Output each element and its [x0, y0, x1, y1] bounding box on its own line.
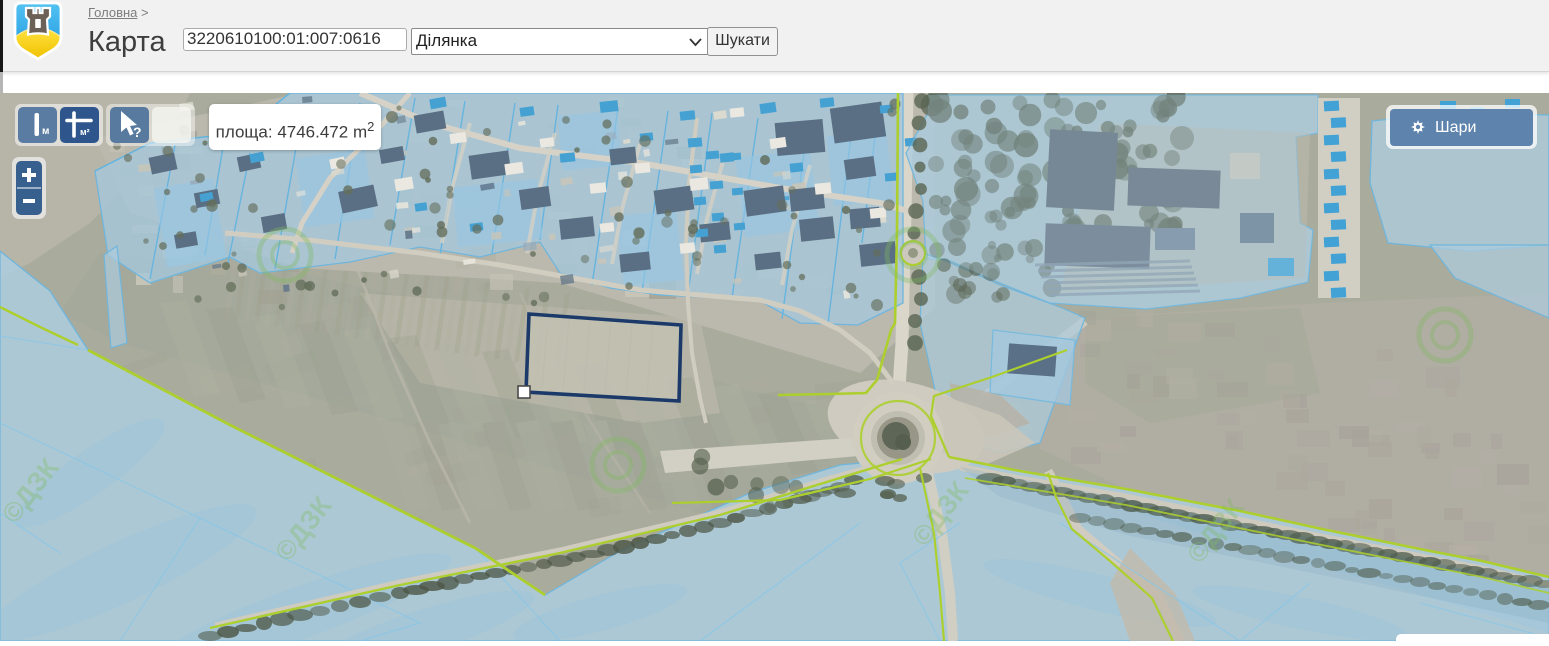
svg-text:м: м	[42, 126, 49, 137]
svg-text:м²: м²	[80, 127, 90, 137]
svg-text:?: ?	[133, 124, 142, 140]
